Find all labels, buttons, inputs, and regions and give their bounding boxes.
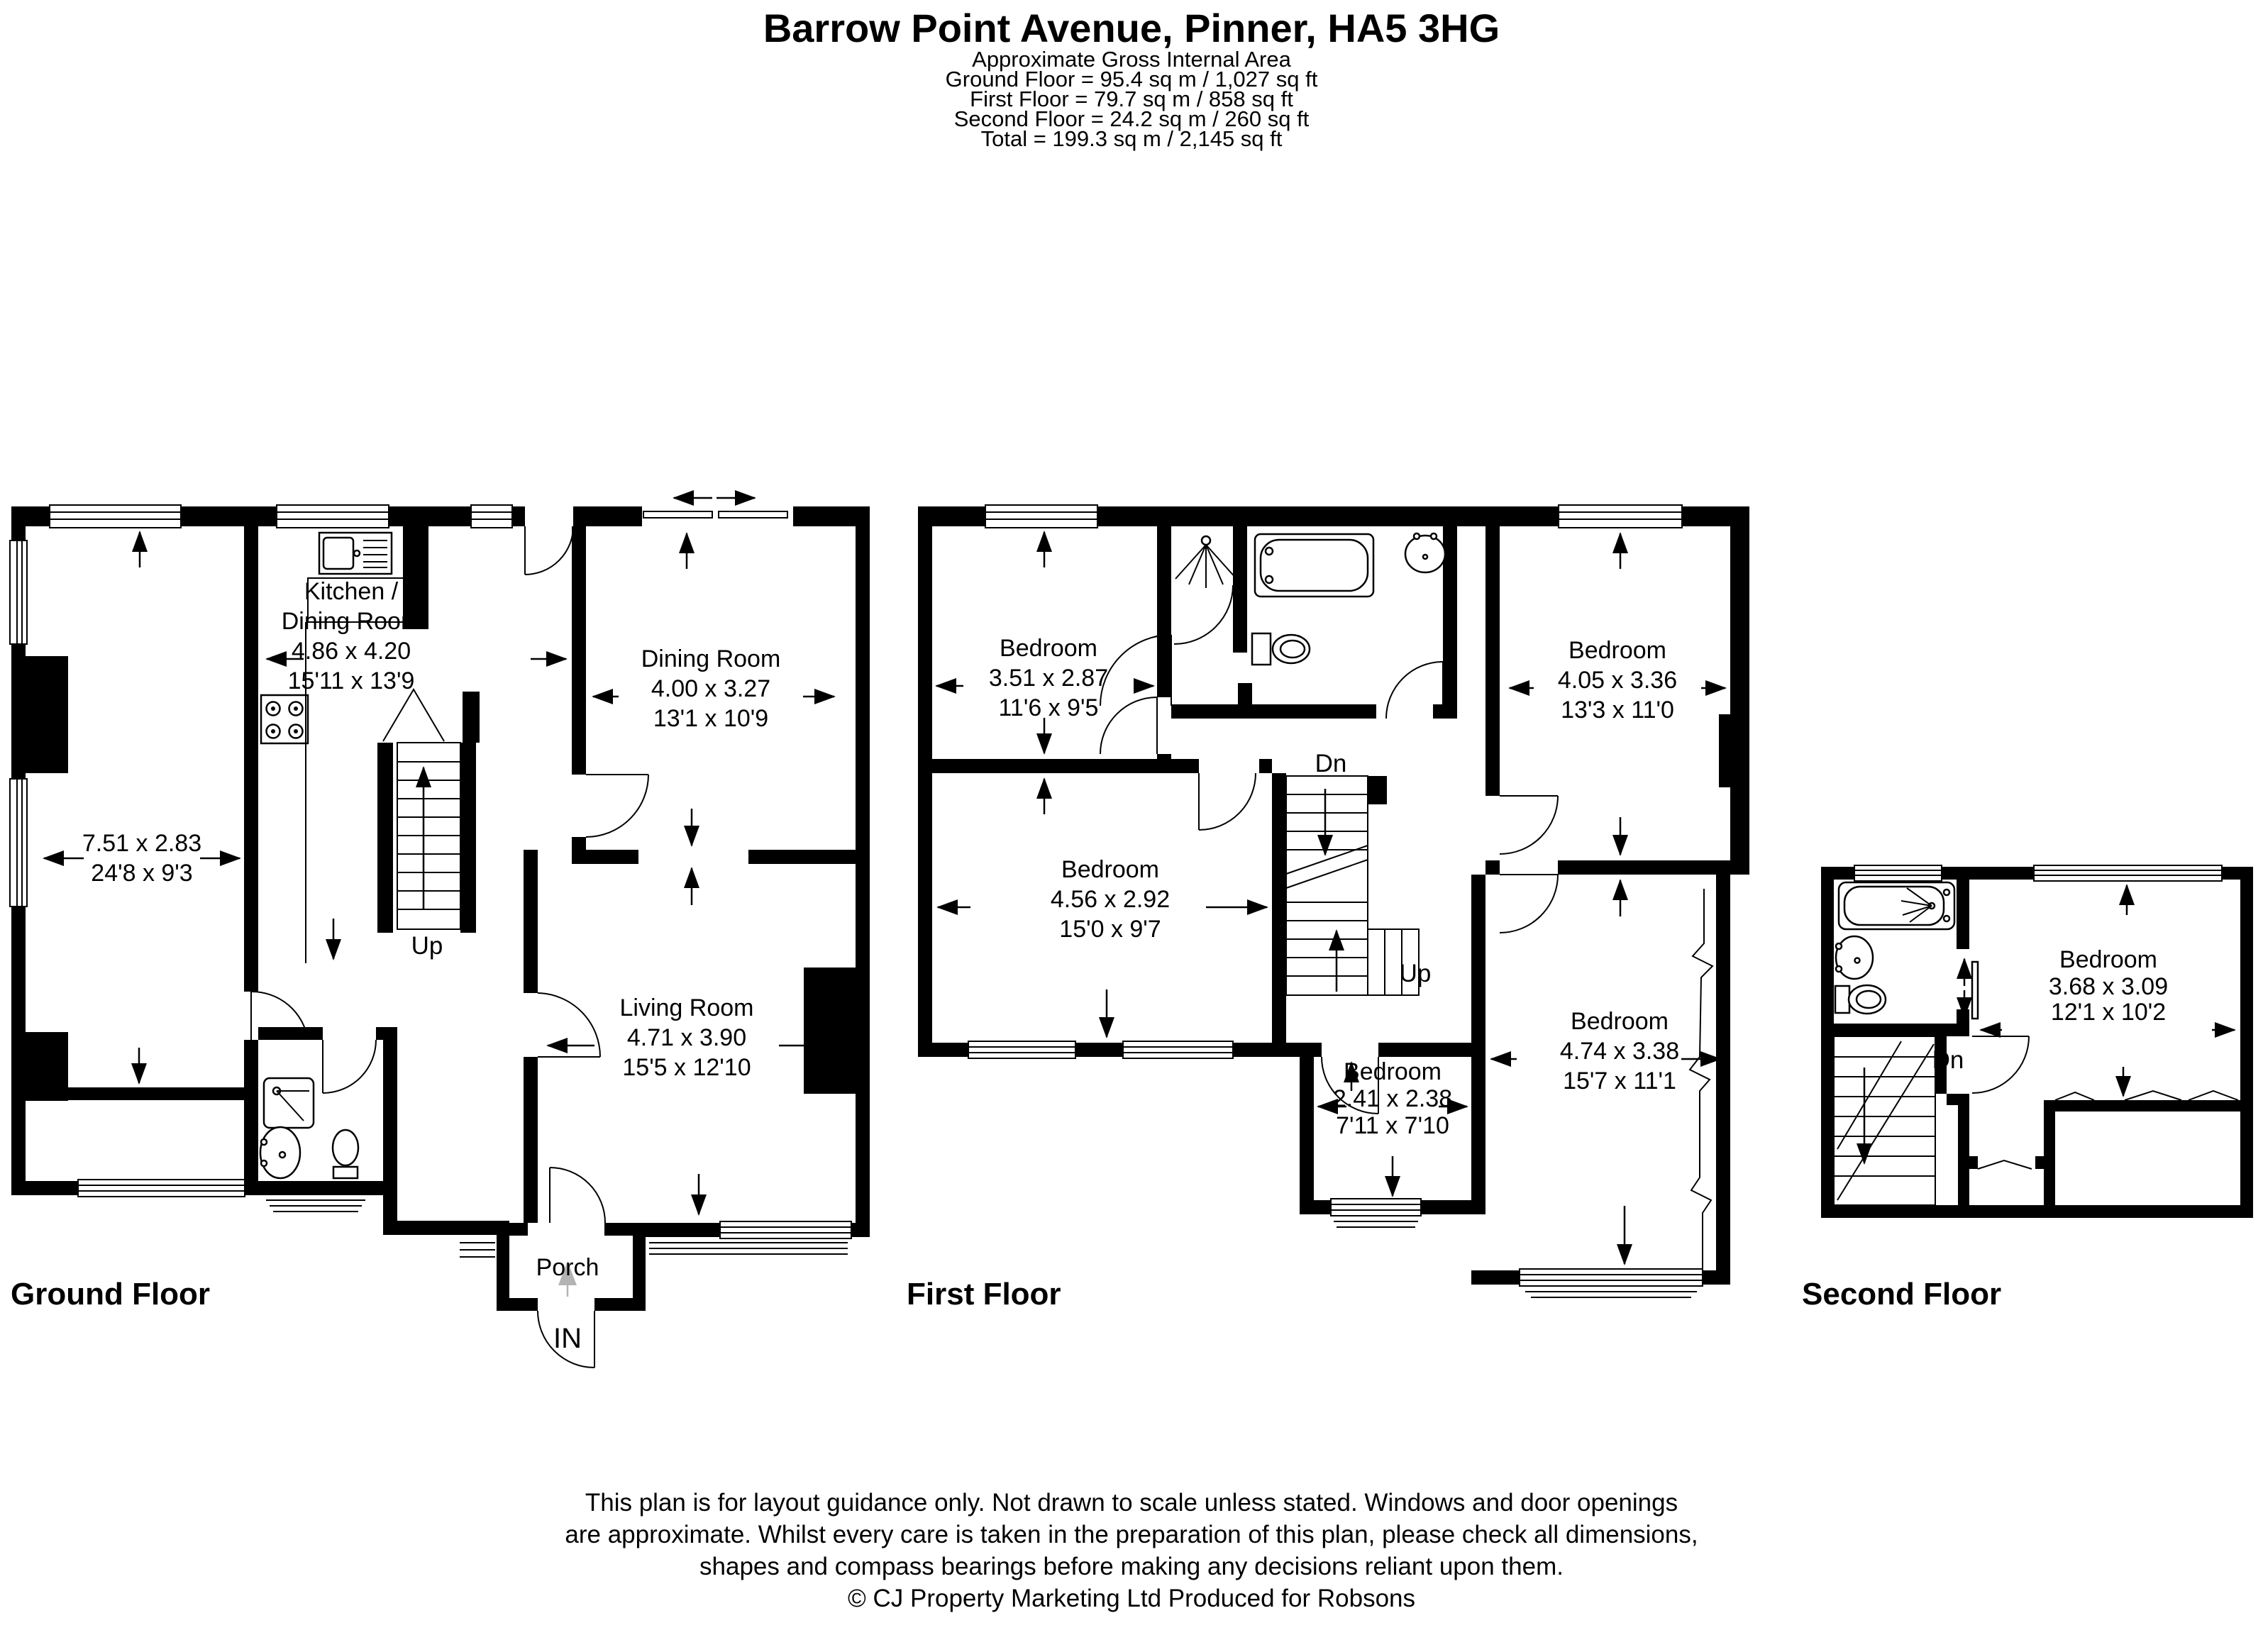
first-stairs-up-label: Up <box>1400 960 1432 987</box>
second-bath-icon <box>1839 882 1954 929</box>
floorplan-page: Barrow Point Avenue, Pinner, HA5 3HG App… <box>0 0 2263 1652</box>
shower-tray-icon <box>264 1078 314 1128</box>
bedroom2-name: Bedroom <box>1061 856 1159 883</box>
bedroom5-dim-ft: 7'11 x 7'10 <box>1336 1112 1449 1139</box>
second-floor-label: Second Floor <box>1802 1277 2001 1312</box>
bedroom6-dim-ft: 12'1 x 10'2 <box>2051 999 2166 1026</box>
ground-floor-label: Ground Floor <box>11 1277 210 1312</box>
disclaimer: This plan is for layout guidance only. N… <box>0 1487 2263 1614</box>
second-stairs <box>1834 1036 1935 1205</box>
dining-dim-ft: 13'1 x 10'9 <box>653 705 768 732</box>
plans-canvas: 7.51 x 2.83 24'8 x 9'3 Kitchen / Dining … <box>0 0 2263 1652</box>
porch-label: Porch <box>536 1254 599 1281</box>
second-sink-icon <box>1836 936 1873 979</box>
ground-stairs <box>383 689 460 929</box>
shower-icon <box>1174 536 1236 644</box>
reception-dim-m: 7.51 x 2.83 <box>82 830 201 857</box>
reception-dim-ft: 24'8 x 9'3 <box>91 860 192 887</box>
second-doors <box>1964 959 2029 1093</box>
first-floor-plan: Bedroom 3.51 x 2.87 11'6 x 9'5 Bedroom 4… <box>918 505 1749 1297</box>
kitchen-dim-ft: 15'11 x 13'9 <box>288 667 415 694</box>
living-name: Living Room <box>620 994 754 1021</box>
ground-dimension-arrows <box>44 498 834 1297</box>
disclaimer-line-2: are approximate. Whilst every care is ta… <box>0 1519 2263 1551</box>
stove-icon <box>261 695 308 743</box>
bedroom3-dim-ft: 13'3 x 11'0 <box>1561 697 1674 724</box>
bedroom1-dim-m: 3.51 x 2.87 <box>989 665 1108 692</box>
bedroom2-dim-ft: 15'0 x 9'7 <box>1059 916 1161 943</box>
bath-icon <box>1255 534 1373 597</box>
bedroom4-dim-ft: 15'7 x 11'1 <box>1563 1068 1676 1094</box>
bedroom4-dim-m: 4.74 x 3.38 <box>1560 1038 1679 1065</box>
first-stairs-down-label: Dn <box>1315 750 1347 777</box>
bedroom1-name: Bedroom <box>1000 635 1097 662</box>
living-dim-m: 4.71 x 3.90 <box>627 1024 746 1051</box>
second-toilet-icon <box>1835 985 1886 1014</box>
first-walls <box>918 506 1749 1285</box>
dining-name: Dining Room <box>641 645 781 672</box>
first-eaves <box>1690 889 1713 1270</box>
kitchen-name-1: Kitchen / <box>304 578 399 605</box>
kitchen-dim-m: 4.86 x 4.20 <box>292 638 411 665</box>
basin-icon <box>260 1127 300 1178</box>
kitchen-sink-icon <box>319 533 392 574</box>
ground-stairs-label: Up <box>411 932 443 960</box>
second-floor-plan: Bedroom 3.68 x 3.09 12'1 x 10'2 Dn <box>1821 865 2253 1218</box>
ground-room-labels: 7.51 x 2.83 24'8 x 9'3 Kitchen / Dining … <box>82 578 780 1354</box>
bedroom5-dim-m: 2.41 x 2.38 <box>1333 1085 1452 1112</box>
bathroom-sink-icon <box>1405 533 1445 572</box>
living-dim-ft: 15'5 x 12'10 <box>622 1054 751 1081</box>
toilet-icon <box>333 1130 358 1178</box>
bedroom6-dim-m: 3.68 x 3.09 <box>2049 973 2168 1000</box>
bedroom2-dim-m: 4.56 x 2.92 <box>1051 886 1170 913</box>
entrance-label: IN <box>553 1323 582 1354</box>
bedroom6-name: Bedroom <box>2059 946 2157 973</box>
bedroom1-dim-ft: 11'6 x 9'5 <box>999 694 1099 721</box>
disclaimer-line-4: © CJ Property Marketing Ltd Produced for… <box>0 1582 2263 1614</box>
bedroom3-name: Bedroom <box>1568 637 1666 664</box>
first-floor-label: First Floor <box>907 1277 1061 1312</box>
bathroom-toilet-icon <box>1252 633 1310 665</box>
dining-dim-m: 4.00 x 3.27 <box>651 675 770 702</box>
bedroom3-dim-m: 4.05 x 3.36 <box>1558 667 1677 694</box>
bedroom5-name: Bedroom <box>1344 1058 1442 1085</box>
second-stairs-down-label: Dn <box>1932 1046 1964 1074</box>
bedroom4-name: Bedroom <box>1571 1008 1669 1035</box>
kitchen-name-2: Dining Room <box>282 608 421 635</box>
second-windows <box>1854 865 2222 881</box>
disclaimer-line-1: This plan is for layout guidance only. N… <box>0 1487 2263 1519</box>
ground-floor-plan: 7.51 x 2.83 24'8 x 9'3 Kitchen / Dining … <box>10 498 870 1368</box>
disclaimer-line-3: shapes and compass bearings before makin… <box>0 1551 2263 1582</box>
